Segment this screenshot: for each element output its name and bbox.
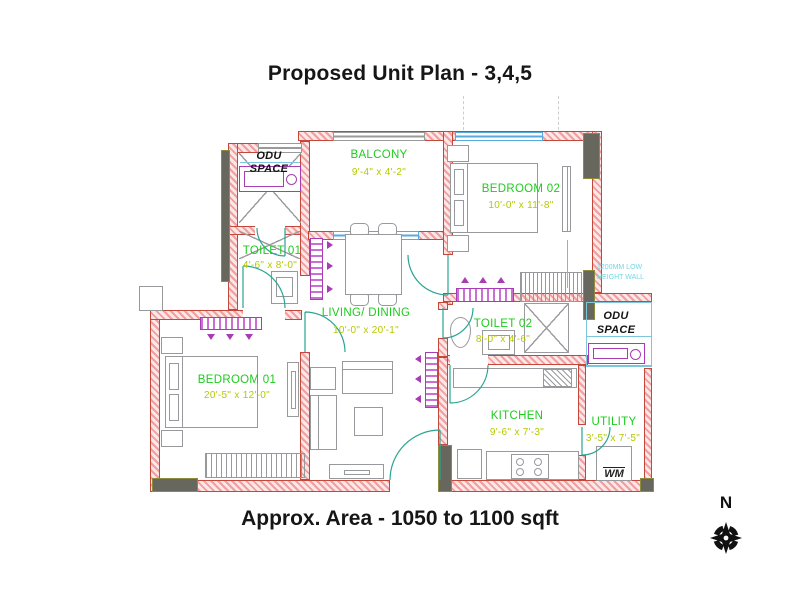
north-label: N [720, 493, 732, 512]
room-dim-toilet01: 4'-6" x 8'-0" [243, 260, 297, 271]
door-arc [243, 266, 285, 308]
compass-center [724, 536, 729, 541]
door-arc [390, 430, 440, 480]
low-wall-note: 1200MM LOW [597, 263, 642, 273]
door-arcs-layer [0, 0, 800, 600]
room-label-bedroom01: BEDROOM 01 [198, 374, 276, 386]
north-compass: N [702, 488, 750, 572]
low-wall-note: HEIGHT WALL [597, 273, 644, 283]
room-label-kitchen: KITCHEN [491, 410, 544, 422]
odu-space-right-label: SPACE [597, 324, 636, 336]
room-dim-bedroom02: 10'-0" x 11'-8" [488, 200, 553, 211]
floor-plan-canvas: Proposed Unit Plan - 3,4,5 Approx. Area … [0, 0, 800, 600]
room-label-toilet01: TOILET 01 [243, 245, 302, 257]
room-dim-living: 10'-0" x 20'-1" [333, 325, 399, 336]
room-dim-utility: 3'-5" x 7'-5" [586, 433, 640, 444]
room-label-living: LIVING/ DINING [322, 307, 411, 319]
room-label-bedroom02: BEDROOM 02 [482, 183, 560, 195]
odu-space-right-label: ODU [603, 310, 628, 322]
room-dim-kitchen: 9'-6" x 7'-3" [490, 427, 544, 438]
room-dim-toilet02: 8'-0" x 4'-6" [476, 334, 530, 345]
odu-space-left-label: SPACE [250, 163, 289, 175]
odu-space-left-label: ODU [256, 150, 281, 162]
room-dim-balcony: 9'-4" x 4'-2" [352, 167, 406, 178]
door-arc [443, 308, 473, 338]
room-label-toilet02: TOILET 02 [474, 318, 533, 330]
door-arc [450, 365, 488, 403]
door-arc [408, 255, 448, 295]
room-label-utility: UTILITY [592, 416, 637, 428]
room-dim-bedroom01: 20'-5" x 12'-0" [204, 390, 270, 401]
room-label-balcony: BALCONY [350, 149, 407, 161]
